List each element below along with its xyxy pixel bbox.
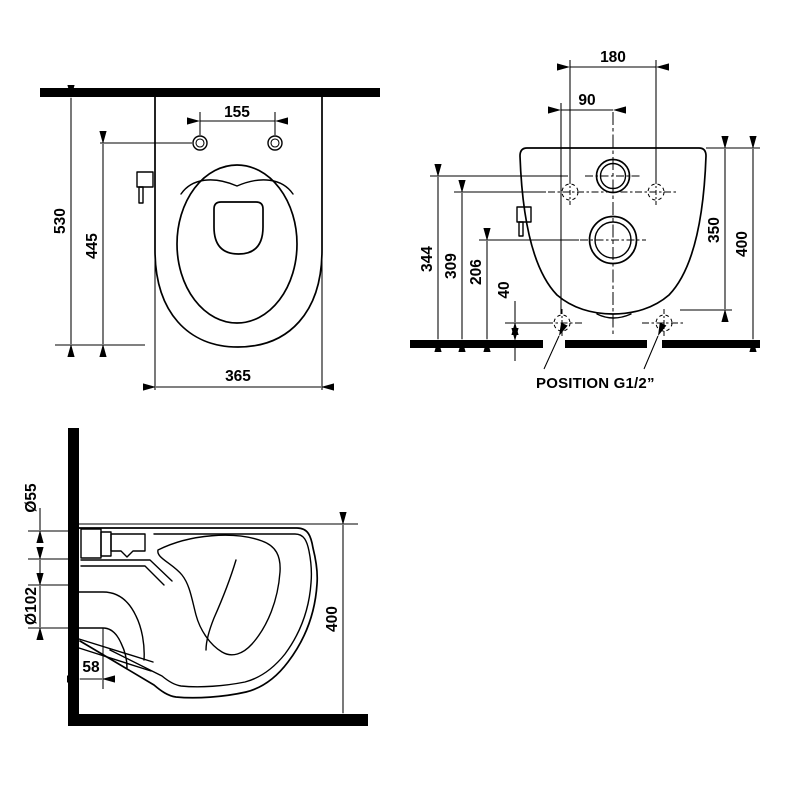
- dim-530-label: 530: [52, 208, 69, 234]
- dim-400-rear-label: 400: [734, 231, 751, 257]
- dim-180-label: 180: [600, 49, 626, 66]
- dim-400-side-label: 400: [324, 606, 341, 632]
- trap-channel-line: [206, 560, 236, 650]
- position-g12-label: POSITION G1/2”: [536, 375, 655, 392]
- wall-section: [68, 428, 79, 726]
- dim-309-label: 309: [443, 253, 460, 279]
- floor-section: [68, 714, 368, 726]
- drawing-svg: 155 445 530 365: [0, 0, 800, 800]
- inlet-connector-inner: [101, 532, 111, 556]
- top-view: 155 445 530 365: [40, 88, 380, 390]
- side-section-view: Ø55 Ø102 58 400: [23, 428, 368, 726]
- position-arrow-left: [544, 336, 559, 369]
- inlet-connector: [81, 529, 101, 558]
- bidet-nozzle-stem: [139, 187, 143, 203]
- seat-rim: [177, 165, 297, 323]
- dim-365-label: 365: [225, 368, 251, 385]
- technical-drawing-canvas: 155 445 530 365: [0, 0, 800, 800]
- rim-rear-edge: [181, 180, 293, 194]
- mounting-hole-left-inner: [196, 139, 204, 147]
- flush-channel: [81, 560, 172, 585]
- inlet-valve-body: [111, 534, 145, 557]
- section-inner-shell: [110, 534, 311, 687]
- dim-90-label: 90: [578, 92, 595, 109]
- wall-line: [40, 88, 380, 97]
- dim-40-label: 40: [496, 281, 513, 298]
- dim-344-label: 344: [419, 246, 436, 272]
- dim-outlet-dia-label: Ø102: [23, 587, 40, 625]
- dim-350-label: 350: [706, 217, 723, 243]
- floor-line-segment: [410, 340, 543, 348]
- dim-445-label: 445: [84, 233, 101, 259]
- mounting-hole-right: [268, 136, 282, 150]
- bowl-opening: [214, 202, 263, 254]
- section-outer-shell: [79, 528, 317, 698]
- bidet-nozzle: [137, 172, 153, 187]
- mounting-hole-right-inner: [271, 139, 279, 147]
- floor-line-segment: [565, 340, 647, 348]
- bidet-nozzle-rear-stem: [519, 222, 523, 236]
- dim-155-label: 155: [224, 104, 250, 121]
- dim-inlet-dia-label: Ø55: [23, 483, 40, 513]
- floor-line-segment: [662, 340, 760, 348]
- mounting-hole-left: [193, 136, 207, 150]
- bowl-interior: [158, 535, 280, 655]
- dim-58-label: 58: [82, 659, 100, 676]
- rear-view: 180 90 344 309 206 40 350 400 POSITION: [410, 49, 760, 392]
- dim-206-label: 206: [468, 259, 485, 285]
